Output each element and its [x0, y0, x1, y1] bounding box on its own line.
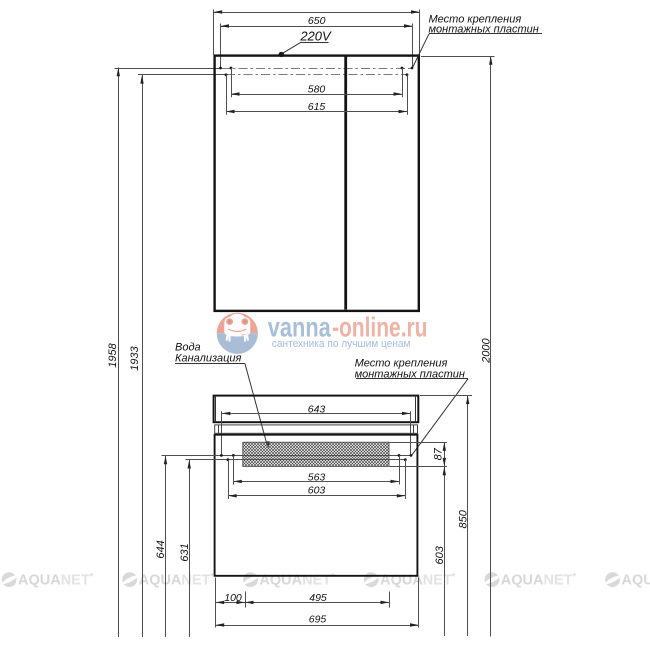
svg-text:563: 563 [308, 471, 326, 483]
svg-text:87: 87 [433, 447, 445, 460]
svg-text:AQUANET*: AQUANET* [139, 572, 215, 589]
svg-text:AQUANET*: AQUANET* [259, 572, 335, 589]
svg-text:695: 695 [309, 614, 327, 626]
svg-text:580: 580 [308, 83, 326, 95]
svg-text:AQUANET*: AQUANET* [622, 572, 650, 589]
svg-text:495: 495 [309, 592, 327, 604]
svg-text:220V: 220V [299, 28, 332, 43]
svg-text:сантехника по лучшим ценам: сантехника по лучшим ценам [272, 338, 411, 350]
svg-text:1958: 1958 [107, 342, 119, 367]
svg-text:100: 100 [224, 592, 242, 604]
svg-text:Вода: Вода [175, 341, 201, 353]
svg-text:1933: 1933 [129, 345, 141, 370]
svg-text:603: 603 [434, 545, 446, 564]
svg-text:650: 650 [308, 15, 326, 27]
svg-text:AQUANET*: AQUANET* [501, 572, 577, 589]
svg-text:643: 643 [308, 403, 326, 415]
svg-text:850: 850 [457, 509, 469, 528]
svg-text:603: 603 [308, 484, 326, 496]
svg-text:615: 615 [308, 101, 326, 113]
svg-text:Канализация: Канализация [175, 353, 241, 365]
svg-text:2000: 2000 [481, 337, 493, 363]
svg-text:644: 644 [155, 540, 167, 558]
svg-text:AQUANET*: AQUANET* [18, 572, 94, 589]
svg-text:631: 631 [179, 543, 191, 561]
